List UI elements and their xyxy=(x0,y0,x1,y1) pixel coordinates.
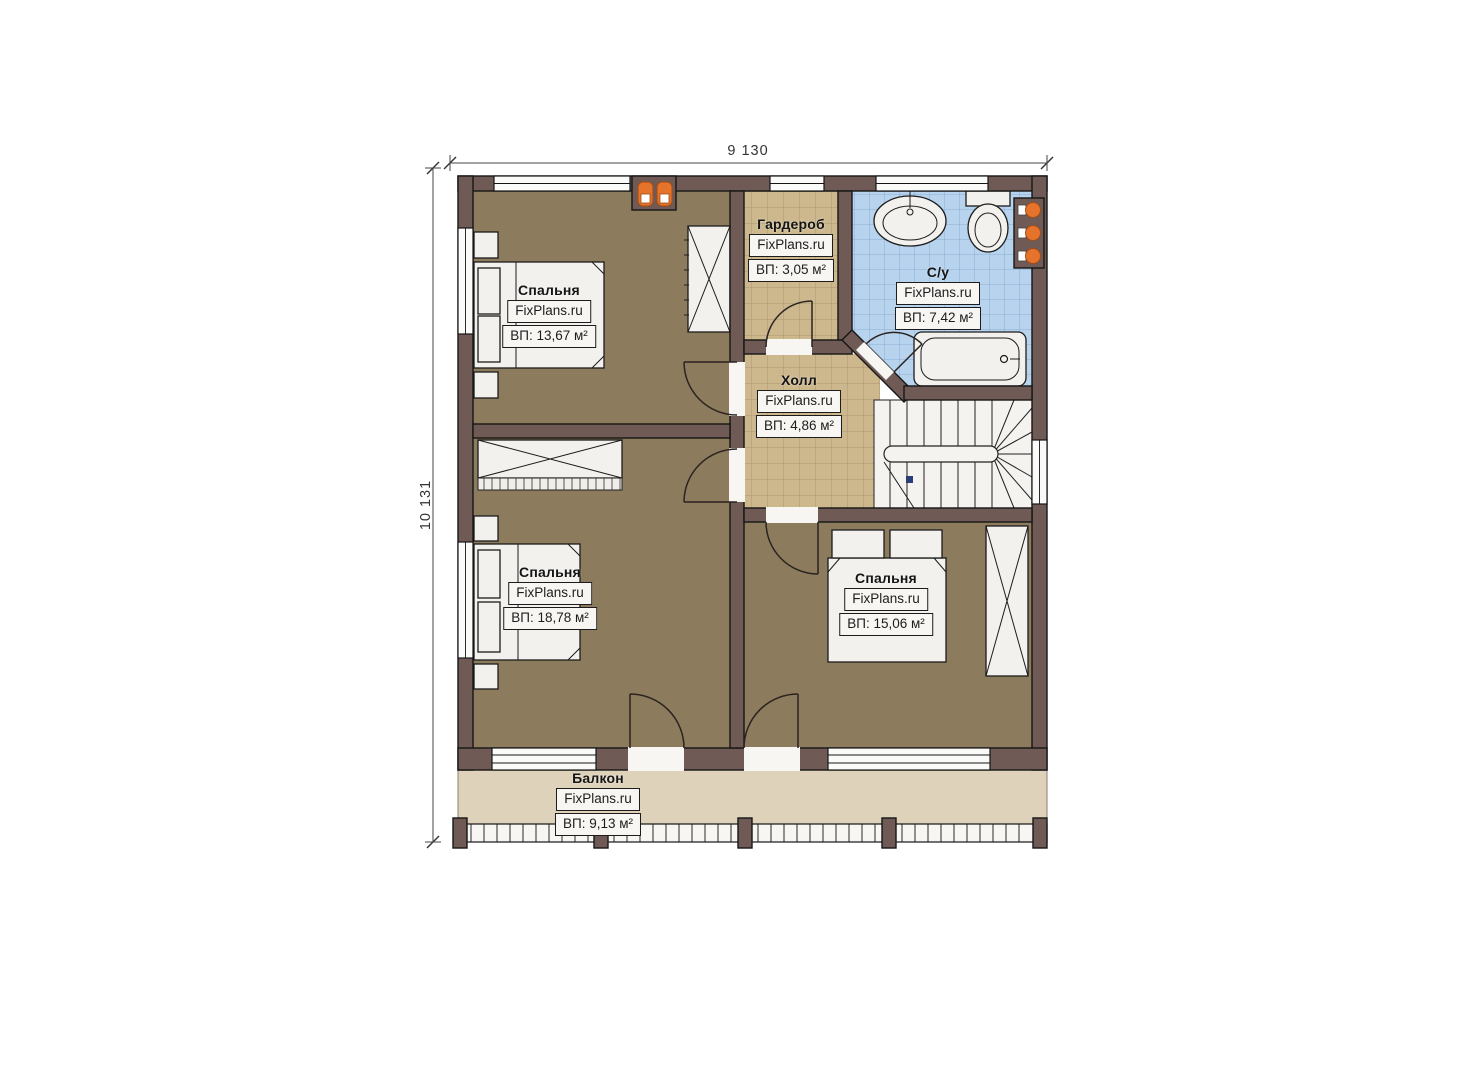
dimension-width-label: 9 130 xyxy=(727,143,768,159)
window xyxy=(876,176,988,191)
area-box: ВП: 18,78 м² xyxy=(503,607,597,630)
watermark-box: FixPlans.ru xyxy=(556,788,640,811)
stairs-marker xyxy=(906,476,913,483)
room-label-bathroom: С/у FixPlans.ru ВП: 7,42 м² xyxy=(895,264,981,330)
area-box: ВП: 9,13 м² xyxy=(555,813,641,836)
room-name: Балкон xyxy=(555,770,641,786)
wardrobe-icon xyxy=(986,526,1028,676)
railing-post xyxy=(453,818,467,848)
wardrobe-icon xyxy=(478,440,622,490)
room-name: С/у xyxy=(895,264,981,280)
window xyxy=(770,176,824,191)
room-name: Спальня xyxy=(502,282,596,298)
room-name: Холл xyxy=(756,372,842,388)
area-box: ВП: 7,42 м² xyxy=(895,307,981,330)
wall-bedroom-divider xyxy=(473,424,730,438)
staircase xyxy=(874,400,1032,508)
toilet-icon xyxy=(966,191,1010,252)
stairs-rail xyxy=(884,446,998,462)
watermark-box: FixPlans.ru xyxy=(507,300,591,323)
window xyxy=(494,176,630,191)
room-name: Спальня xyxy=(503,564,597,580)
window xyxy=(492,748,596,770)
room-label-bedroom-2: Спальня FixPlans.ru ВП: 18,78 м² xyxy=(503,564,597,630)
watermark-box: FixPlans.ru xyxy=(896,282,980,305)
railing-post xyxy=(882,818,896,848)
window xyxy=(458,228,473,334)
watermark-box: FixPlans.ru xyxy=(508,582,592,605)
railing-post xyxy=(738,818,752,848)
railing-post xyxy=(1033,818,1047,848)
room-label-bedroom-1: Спальня FixPlans.ru ВП: 13,67 м² xyxy=(502,282,596,348)
room-label-balcony: Балкон FixPlans.ru ВП: 9,13 м² xyxy=(555,770,641,836)
radiator-icon xyxy=(632,176,676,210)
window xyxy=(1032,440,1047,504)
window xyxy=(828,748,990,770)
watermark-box: FixPlans.ru xyxy=(844,588,928,611)
dimension-height-label: 10 131 xyxy=(418,480,434,530)
area-box: ВП: 4,86 м² xyxy=(756,415,842,438)
area-box: ВП: 15,06 м² xyxy=(839,613,933,636)
wardrobe-icon xyxy=(684,226,730,332)
room-label-hall: Холл FixPlans.ru ВП: 4,86 м² xyxy=(756,372,842,438)
floor-plan-drawing xyxy=(0,0,1473,1080)
window xyxy=(458,542,473,658)
area-box: ВП: 13,67 м² xyxy=(502,325,596,348)
room-name: Гардероб xyxy=(748,216,834,232)
area-box: ВП: 3,05 м² xyxy=(748,259,834,282)
room-label-bedroom-3: Спальня FixPlans.ru ВП: 15,06 м² xyxy=(839,570,933,636)
wall-wardrobe-bath xyxy=(838,191,852,340)
room-name: Спальня xyxy=(839,570,933,586)
watermark-box: FixPlans.ru xyxy=(757,390,841,413)
floor-plan-canvas: 9 130 10 131 Спальня FixPlans.ru ВП: 13,… xyxy=(0,0,1473,1080)
wall-bath-bottom xyxy=(904,386,1032,400)
towel-radiator-icon xyxy=(1014,198,1044,268)
room-label-wardrobe: Гардероб FixPlans.ru ВП: 3,05 м² xyxy=(748,216,834,282)
bathtub-icon xyxy=(914,332,1026,386)
balcony-floor xyxy=(458,770,1047,824)
watermark-box: FixPlans.ru xyxy=(749,234,833,257)
